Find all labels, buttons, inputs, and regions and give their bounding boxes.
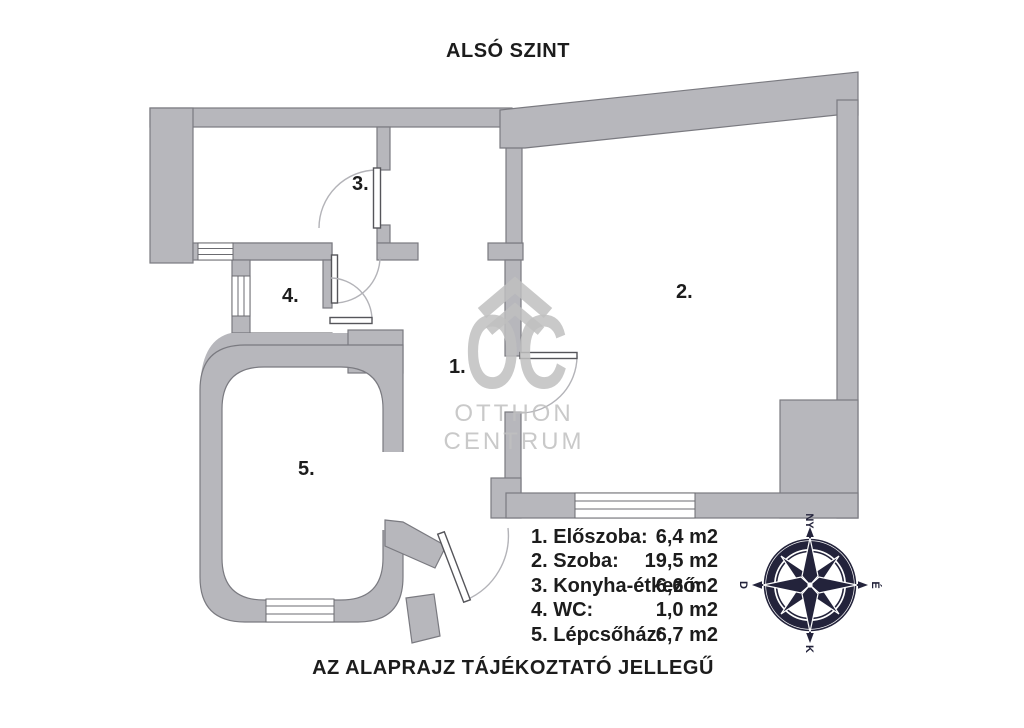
legend-label-2: 2. Szoba: (531, 550, 619, 572)
wall-partition-foot (377, 243, 418, 260)
compass-label-top: NY (803, 513, 815, 529)
legend: 1. Előszoba: 6,4 m2 2. Szoba: 19,5 m2 3.… (531, 526, 718, 646)
window-marker-wc (232, 276, 250, 316)
floor-plan-page: OC OTTHON CENTRUM 1. 2. 3. 4. 5. ALSÓ SZ… (0, 0, 1024, 728)
legend-label-4: 4. WC: (531, 599, 593, 621)
door-swing-entry (438, 528, 509, 602)
compass-label-left: D (737, 581, 749, 589)
legend-row: 3. Konyha-étkező: 6,6 m2 (531, 575, 718, 597)
page-title: ALSÓ SZINT (446, 38, 570, 62)
legend-area-2: 19,5 m2 (645, 550, 718, 572)
room-label-5: 5. (298, 458, 315, 480)
compass-rose: NY É K D (737, 513, 882, 653)
wall-wc-top (232, 243, 332, 260)
window-marker-room2 (575, 493, 695, 518)
legend-row: 1. Előszoba: 6,4 m2 (531, 526, 718, 548)
legend-area-3: 6,6 m2 (656, 575, 718, 597)
compass-tip-bottom (806, 633, 814, 643)
compass-label-bottom: K (803, 645, 815, 653)
legend-area-5: 6,7 m2 (656, 624, 718, 646)
compass-tip-right (858, 581, 868, 589)
watermark-centrum-text: CENTRUM (444, 428, 585, 455)
legend-area-4: 1,0 m2 (656, 599, 718, 621)
legend-label-1: 1. Előszoba: (531, 526, 648, 548)
legend-row: 4. WC: 1,0 m2 (531, 599, 718, 621)
stairwell-opening (381, 452, 405, 530)
floor-plan-svg: OC OTTHON CENTRUM 1. 2. 3. 4. 5. ALSÓ SZ… (0, 0, 1024, 728)
wall-left (150, 108, 193, 263)
wall-wc-right (323, 260, 332, 308)
compass-center (807, 582, 812, 587)
window-marker-stairwell (266, 599, 334, 622)
legend-label-5: 5. Lépcsőház: (531, 624, 663, 646)
legend-row: 2. Szoba: 19,5 m2 (531, 550, 718, 572)
legend-row: 5. Lépcsőház: 6,7 m2 (531, 624, 718, 646)
compass-label-right: É (869, 581, 882, 588)
wall-divider-foot-top (488, 243, 523, 260)
window-marker-kitchen (198, 243, 233, 260)
wall-partition-top (377, 127, 390, 170)
wall-top (150, 108, 512, 127)
page-footnote: AZ ALAPRAJZ TÁJÉKOZTATÓ JELLEGŰ (312, 655, 714, 679)
room-label-3: 3. (352, 173, 369, 195)
watermark-oc-text: OC (465, 294, 566, 411)
room-label-1: 1. (449, 356, 466, 378)
compass-tip-left (752, 581, 762, 589)
watermark-otthon-text: OTTHON (454, 400, 573, 427)
compass-star (763, 538, 857, 632)
wall-room2-slant-top (500, 72, 858, 148)
door-swing-kitchen (319, 168, 381, 228)
room-label-4: 4. (282, 285, 299, 307)
wall-stairwell-shell (200, 345, 403, 622)
legend-area-1: 6,4 m2 (656, 526, 718, 548)
room-label-2: 2. (676, 281, 693, 303)
wall-entry-lower (406, 594, 440, 643)
